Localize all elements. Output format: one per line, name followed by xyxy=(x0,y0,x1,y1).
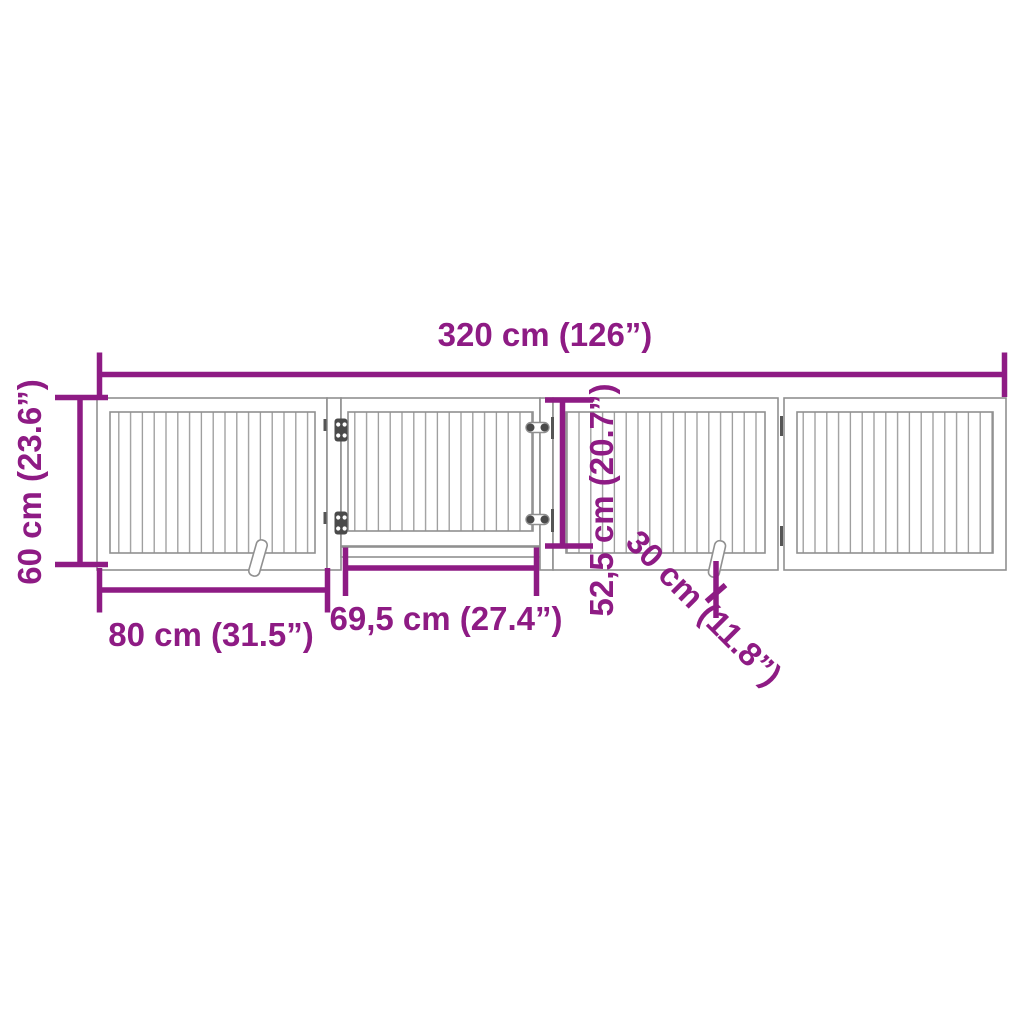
under-door-bar xyxy=(341,547,546,557)
label-panel-width: 80 cm (31.5”) xyxy=(108,616,313,653)
gate-door xyxy=(341,398,540,546)
dim-line-total-width xyxy=(97,353,1007,398)
door-hinge-icon xyxy=(335,512,348,535)
door-hinge-icon xyxy=(335,419,348,442)
gate-panel-left xyxy=(97,398,327,570)
label-door-height: 52,5 cm (20.7”) xyxy=(583,384,620,617)
dim-line-panel-width xyxy=(97,568,330,613)
gate-panel-right xyxy=(784,398,1006,570)
label-door-width: 69,5 cm (27.4”) xyxy=(330,600,563,637)
label-gate-height: 60 cm (23.6”) xyxy=(11,379,48,584)
door-latch-icon xyxy=(526,423,549,433)
gate-dimension-drawing: 320 cm (126”) 60 cm (23.6”) 80 cm (31.5”… xyxy=(0,0,1024,1024)
door-latch-icon xyxy=(526,515,549,525)
product-dimension-diagram: 320 cm (126”) 60 cm (23.6”) 80 cm (31.5”… xyxy=(0,0,1024,1024)
label-total-width: 320 cm (126”) xyxy=(438,316,653,353)
